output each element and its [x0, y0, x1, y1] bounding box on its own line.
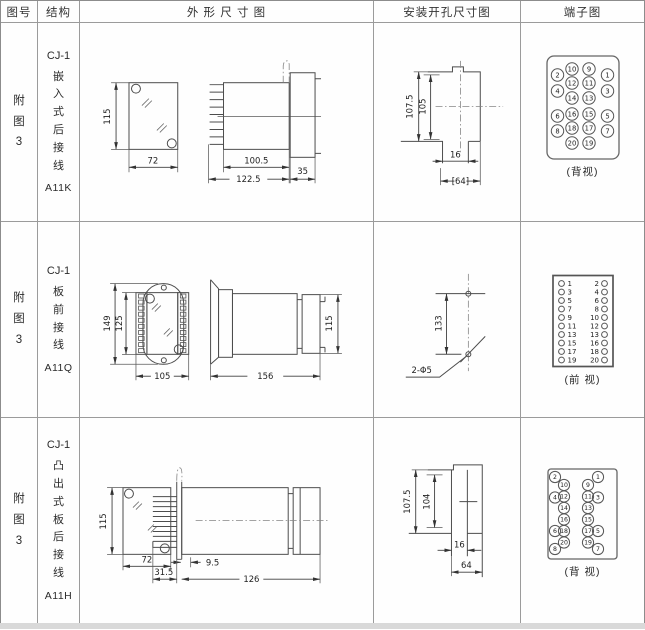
svg-text:1: 1: [605, 71, 609, 79]
svg-text:18: 18: [590, 348, 599, 356]
svg-text:19: 19: [584, 540, 592, 547]
dim-front-width: 72: [142, 554, 153, 564]
outline-drawing-a11h: 115 72 9.5: [80, 418, 373, 623]
dim-offset: 9.5: [206, 557, 219, 567]
dim-front-width: 105: [154, 371, 170, 381]
outline-drawing-a11k: 115 72 100.5 122.5: [80, 23, 373, 221]
svg-text:13: 13: [590, 331, 599, 339]
header-cell-terminal-diagram: 端子图: [521, 1, 644, 23]
svg-text:8: 8: [555, 127, 559, 135]
dim-flange-depth: 35: [297, 166, 308, 176]
outline-cell-r3: 115 72 9.5: [80, 418, 374, 623]
svg-text:15: 15: [567, 340, 576, 348]
svg-text:18: 18: [560, 528, 568, 535]
relay-dimension-table: 图号 结构 外 形 尺 寸 图 安装开孔尺寸图 端子图 附图3 CJ-1 嵌入式…: [0, 0, 645, 624]
dim-slot-width: 16: [450, 149, 461, 159]
svg-text:3: 3: [567, 289, 571, 297]
dim-cutout-inner-height: 105: [418, 99, 428, 115]
front-view-a11q: 149 125 105: [102, 284, 189, 382]
mounting-cell-r2: 133 2-Φ5: [374, 222, 521, 418]
model-label: A11H: [45, 590, 73, 602]
mounting-cell-r1: 107.5 105 16 [64]: [374, 23, 521, 222]
svg-text:17: 17: [584, 124, 593, 132]
terminal-view-label-r3: (背 视): [565, 564, 601, 579]
dim-hole-distance: 133: [434, 315, 444, 331]
terminal-strip-right: [180, 294, 186, 353]
svg-text:6: 6: [555, 112, 559, 120]
terminal-view-label-r1: (背视): [567, 164, 599, 179]
outline-cell-r1: 115 72 100.5 122.5: [80, 23, 374, 222]
svg-text:19: 19: [567, 357, 576, 365]
svg-text:2: 2: [555, 71, 559, 79]
dim-cutout-width: [64]: [452, 176, 469, 186]
svg-text:12: 12: [567, 79, 576, 87]
svg-text:9: 9: [567, 314, 571, 322]
structure-cell-r2: CJ-1 板前接线 A11Q: [38, 222, 80, 418]
dim-cutout-outer-height: 107.5: [402, 490, 412, 514]
front-view-a11h: 115 72: [98, 488, 171, 571]
dim-inner-height: 125: [114, 315, 124, 331]
front-view-a11k: 115 72: [102, 83, 178, 173]
svg-text:13: 13: [567, 331, 576, 339]
svg-text:8: 8: [553, 546, 557, 553]
fig-no-cell-r1: 附图3: [1, 23, 38, 222]
header-cell-structure: 结构: [38, 1, 80, 23]
svg-text:5: 5: [605, 112, 609, 120]
page-bottom-strip: [0, 623, 645, 629]
fig-no-label: 附图3: [12, 91, 26, 153]
svg-text:10: 10: [590, 314, 599, 322]
dim-front-height: 115: [98, 513, 108, 529]
svg-text:14: 14: [560, 505, 568, 512]
svg-text:11: 11: [584, 494, 592, 501]
terminal-cell-r2: 1234567891011121313151617181920 (前 视): [521, 222, 644, 418]
structure-cell-r1: CJ-1 嵌入式后接线 A11K: [38, 23, 80, 222]
fig-no-cell-r2: 附图3: [1, 222, 38, 418]
svg-text:13: 13: [584, 94, 593, 102]
svg-text:4: 4: [553, 495, 557, 502]
terminal-diagram-a11q: 1234567891011121313151617181920: [552, 274, 614, 368]
svg-text:14: 14: [567, 94, 576, 102]
dim-pin-length: 31.5: [154, 567, 173, 577]
outline-cell-r2: 149 125 105: [80, 222, 374, 418]
dim-overall-length: 122.5: [236, 174, 260, 184]
mount-type-label: 板前接线: [52, 284, 66, 355]
fig-no-cell-r3: 附图3: [1, 418, 38, 623]
mount-type-label: 嵌入式后接线: [52, 69, 66, 176]
svg-text:11: 11: [567, 323, 576, 331]
svg-text:19: 19: [584, 139, 593, 147]
svg-text:6: 6: [553, 528, 557, 535]
outline-drawing-a11q: 149 125 105: [80, 222, 373, 417]
dim-side-height: 115: [324, 315, 334, 331]
svg-text:5: 5: [596, 528, 600, 535]
series-label: CJ-1: [47, 439, 70, 451]
svg-text:7: 7: [596, 546, 600, 553]
svg-text:17: 17: [567, 348, 576, 356]
svg-text:2: 2: [553, 474, 557, 481]
svg-text:20: 20: [590, 357, 599, 365]
model-label: A11K: [45, 182, 72, 194]
dim-front-width: 72: [147, 155, 158, 165]
terminal-cell-r3: 1012141618209111315171924681357 (背 视): [521, 418, 644, 623]
svg-text:17: 17: [584, 528, 592, 535]
dim-outer-height: 149: [102, 315, 112, 331]
fig-no-label: 附图3: [12, 288, 26, 350]
svg-text:9: 9: [586, 482, 590, 489]
mounting-cell-r3: 107.5 104 16 64: [374, 418, 521, 623]
svg-text:13: 13: [584, 505, 592, 512]
svg-text:3: 3: [605, 87, 609, 95]
terminal-diagram-a11h: 1012141618209111315171924681357: [547, 468, 618, 560]
svg-text:3: 3: [596, 495, 600, 502]
dim-side-length: 156: [257, 371, 273, 381]
mounting-drawing-a11q: 133 2-Φ5: [374, 222, 520, 417]
dim-body-length: 126: [243, 574, 259, 584]
svg-text:15: 15: [584, 110, 593, 118]
structure-cell-r3: CJ-1 凸出式板后接线 A11H: [38, 418, 80, 623]
svg-text:15: 15: [584, 517, 592, 524]
header-cell-mounting-dims: 安装开孔尺寸图: [374, 1, 521, 23]
header-cell-fig-no: 图号: [1, 1, 38, 23]
terminal-diagram-a11k: 1091211141316151817201924681357: [546, 55, 620, 160]
dim-front-height: 115: [102, 108, 112, 124]
svg-text:12: 12: [560, 494, 568, 501]
svg-text:16: 16: [567, 110, 576, 118]
svg-text:8: 8: [594, 306, 598, 314]
terminal-view-label-r2: (前 视): [565, 372, 601, 387]
side-view-a11h: 9.5 31.5 126: [153, 468, 329, 584]
svg-text:10: 10: [560, 482, 568, 489]
model-label: A11Q: [44, 362, 72, 374]
header-cell-outline-dims: 外 形 尺 寸 图: [80, 1, 374, 23]
svg-text:1: 1: [567, 280, 571, 288]
svg-text:4: 4: [555, 87, 559, 95]
dim-cutout-outer-height: 107.5: [405, 95, 415, 119]
svg-text:1: 1: [596, 474, 600, 481]
dim-hole-spec: 2-Φ5: [411, 365, 431, 375]
side-view-a11k: 100.5 122.5 35: [209, 61, 321, 184]
svg-text:20: 20: [560, 540, 568, 547]
side-view-a11q: 156 115: [211, 280, 342, 381]
terminal-cell-r1: 1091211141316151817201924681357 (背视): [521, 23, 644, 222]
svg-text:16: 16: [560, 517, 568, 524]
datasheet-page: 图号 结构 外 形 尺 寸 图 安装开孔尺寸图 端子图 附图3 CJ-1 嵌入式…: [0, 0, 645, 630]
svg-text:7: 7: [605, 127, 609, 135]
svg-text:20: 20: [567, 139, 576, 147]
series-label: CJ-1: [47, 50, 70, 62]
mounting-drawing-a11h: 107.5 104 16 64: [374, 418, 520, 623]
mounting-drawing-a11k: 107.5 105 16 [64]: [374, 23, 520, 221]
svg-text:11: 11: [584, 79, 593, 87]
svg-text:7: 7: [567, 306, 571, 314]
dim-body-length: 100.5: [244, 155, 268, 165]
svg-text:18: 18: [567, 124, 576, 132]
svg-text:9: 9: [586, 65, 590, 73]
svg-text:2: 2: [594, 280, 598, 288]
svg-text:12: 12: [590, 323, 599, 331]
svg-text:5: 5: [567, 297, 571, 305]
svg-text:4: 4: [594, 289, 599, 297]
svg-text:10: 10: [567, 65, 576, 73]
svg-text:6: 6: [594, 297, 599, 305]
svg-text:16: 16: [590, 340, 599, 348]
dim-cutout-width: 64: [461, 560, 472, 570]
series-label: CJ-1: [47, 265, 70, 277]
fig-no-label: 附图3: [12, 489, 26, 551]
dim-slot-width: 16: [454, 539, 465, 549]
dim-cutout-inner-height: 104: [422, 494, 432, 510]
mount-type-label: 凸出式板后接线: [52, 458, 66, 583]
